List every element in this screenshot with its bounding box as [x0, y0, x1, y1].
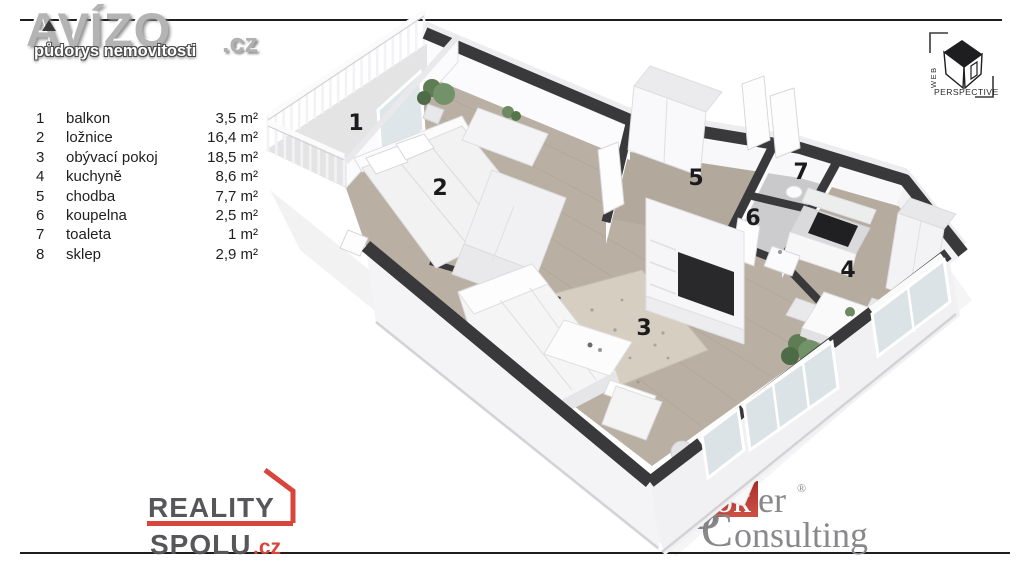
room-label-4: 4	[840, 258, 855, 283]
page: { "branding": { "avizo": {"name": "AVÍZO…	[0, 0, 1024, 576]
room-label-6: 6	[745, 206, 760, 231]
room-label-1: 1	[348, 111, 363, 136]
room-label-3: 3	[636, 316, 651, 341]
toilet-bowl	[786, 186, 802, 198]
floor-plan: 1234567	[0, 0, 1024, 576]
room-label-7: 7	[793, 160, 808, 185]
room-label-5: 5	[688, 166, 703, 191]
room-label-2: 2	[432, 176, 447, 201]
toilet-door	[770, 88, 800, 158]
